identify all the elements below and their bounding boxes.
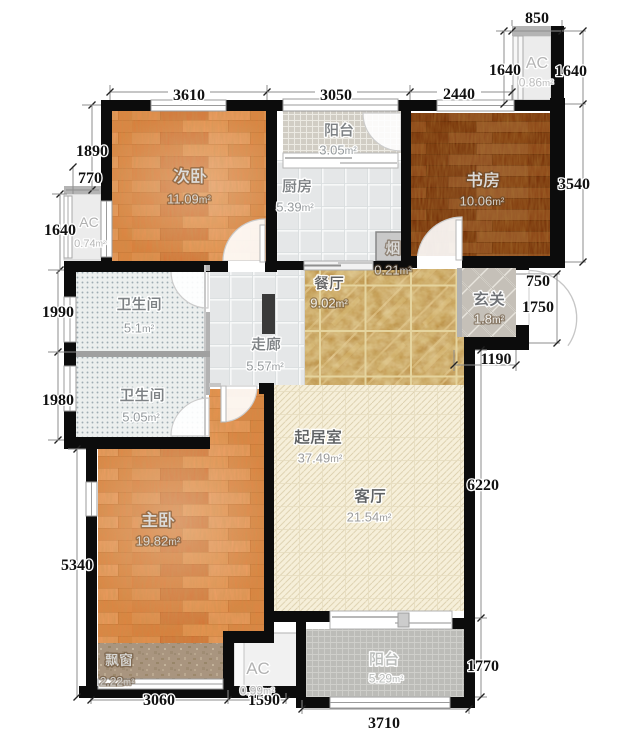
svg-text:AC: AC — [79, 214, 98, 230]
svg-text:AC: AC — [526, 55, 548, 72]
svg-text:750: 750 — [526, 273, 550, 290]
svg-text:770: 770 — [78, 170, 102, 187]
svg-text:1750: 1750 — [522, 299, 554, 316]
svg-text:3610: 3610 — [173, 87, 205, 104]
svg-text:1890: 1890 — [76, 143, 108, 160]
svg-text:3050: 3050 — [320, 87, 352, 104]
svg-text:1980: 1980 — [42, 392, 74, 409]
svg-text:1770: 1770 — [467, 658, 499, 675]
svg-text:1190: 1190 — [480, 351, 511, 368]
svg-text:2.22m²: 2.22m² — [100, 674, 135, 688]
svg-text:1640: 1640 — [44, 222, 76, 239]
svg-text:0.86m²: 0.86m² — [519, 75, 554, 89]
svg-text:2440: 2440 — [443, 86, 475, 103]
svg-text:6220: 6220 — [467, 477, 499, 494]
svg-text:3710: 3710 — [368, 715, 400, 730]
svg-text:1990: 1990 — [42, 304, 74, 321]
svg-text:3060: 3060 — [143, 692, 175, 709]
svg-text:5340: 5340 — [61, 557, 93, 574]
svg-text:AC: AC — [246, 659, 270, 678]
svg-text:0.74m²: 0.74m² — [74, 238, 106, 250]
svg-text:1640: 1640 — [489, 62, 521, 79]
svg-text:1640: 1640 — [555, 63, 587, 80]
svg-text:5.29m²: 5.29m² — [369, 671, 404, 685]
svg-text:850: 850 — [525, 10, 549, 27]
svg-text:0.99m²: 0.99m² — [240, 683, 275, 697]
svg-text:3540: 3540 — [558, 176, 590, 193]
